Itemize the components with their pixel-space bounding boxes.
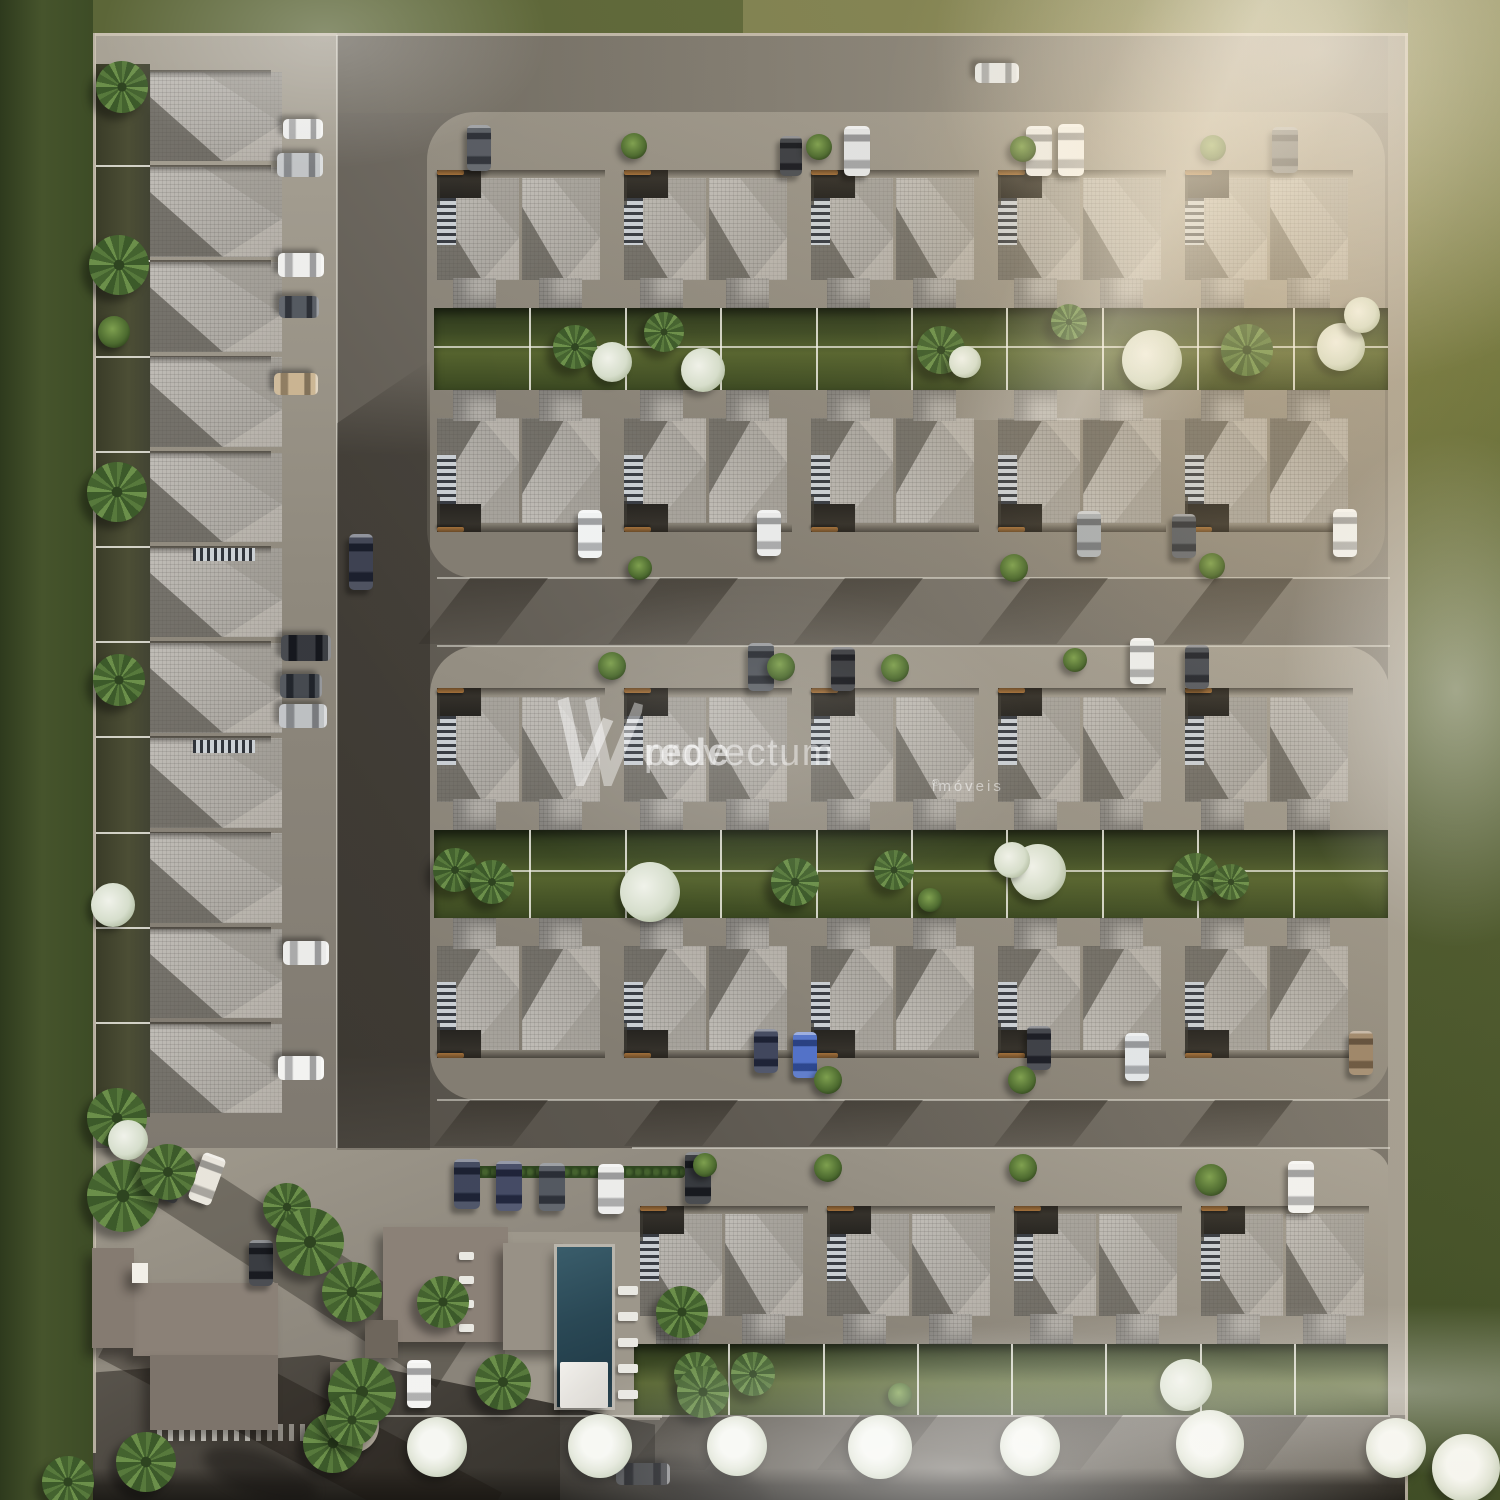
house-cast-shadow xyxy=(811,1050,979,1058)
white-flowering-tree xyxy=(568,1414,632,1478)
yard-fence-line xyxy=(1006,308,1008,390)
roof-right-unit xyxy=(522,946,600,1050)
house-module-left xyxy=(150,927,282,1020)
roof-rear-extension xyxy=(929,1314,971,1344)
house-road-shadow xyxy=(624,1100,738,1146)
roof-rear-extension xyxy=(1287,390,1329,421)
white-flowering-tree xyxy=(1432,1434,1500,1500)
clubhouse-flat-roof xyxy=(503,1243,563,1350)
curb-line xyxy=(437,645,1390,647)
green-bush xyxy=(1009,1154,1037,1182)
car xyxy=(278,253,324,277)
car xyxy=(1130,638,1154,684)
perimeter-wall-right xyxy=(1405,33,1408,1500)
right-sidewalk xyxy=(1388,35,1406,1415)
roof-right-unit xyxy=(896,946,974,1050)
white-flowering-tree xyxy=(407,1417,467,1477)
yard-fence-line xyxy=(1293,830,1295,918)
green-bush xyxy=(1008,1066,1036,1094)
car xyxy=(283,941,329,965)
roof-right-unit xyxy=(522,697,600,802)
roof-rear-extension xyxy=(453,278,495,308)
yard-fence-line xyxy=(816,308,818,390)
house-module xyxy=(437,688,620,830)
yard-fence-line xyxy=(911,308,913,390)
car xyxy=(975,63,1019,83)
white-bush xyxy=(108,1120,148,1160)
yard-fence-line xyxy=(96,832,150,834)
white-bush xyxy=(1122,330,1182,390)
yard-fence-line xyxy=(728,1344,730,1415)
roof-rear-extension xyxy=(1014,390,1056,421)
roof xyxy=(150,929,282,1018)
green-bush xyxy=(693,1153,717,1177)
car xyxy=(1027,1026,1051,1070)
house-module-left xyxy=(150,260,282,353)
yard-fence-line xyxy=(96,356,150,358)
palm-tree xyxy=(322,1262,382,1322)
car xyxy=(349,534,373,590)
house-cast-shadow xyxy=(437,1050,605,1058)
car xyxy=(1077,511,1101,557)
palm-tree xyxy=(140,1144,196,1200)
house-cast-shadow xyxy=(1014,1206,1182,1214)
house-cast-shadow xyxy=(150,260,271,268)
house-cast-shadow xyxy=(150,641,271,649)
car xyxy=(280,674,322,698)
car xyxy=(578,510,602,558)
roof-rear-extension xyxy=(539,390,581,421)
house-cast-shadow xyxy=(998,688,1166,696)
roof xyxy=(150,262,282,351)
green-bush xyxy=(628,556,652,580)
yard-fence-line xyxy=(96,641,150,643)
driveway-stripes xyxy=(193,548,255,561)
roof-right-unit xyxy=(1083,946,1161,1050)
roof-rear-extension xyxy=(539,799,581,830)
house-module xyxy=(1201,1206,1384,1344)
palm-tree xyxy=(326,1394,378,1446)
house-cast-shadow xyxy=(150,70,271,78)
house-module xyxy=(624,688,807,830)
roof-rear-extension xyxy=(726,799,768,830)
white-flowering-tree xyxy=(707,1416,767,1476)
roof-rear-extension xyxy=(1116,1314,1158,1344)
house-road-shadow xyxy=(434,1100,548,1146)
roof-rear-extension xyxy=(1030,1314,1072,1344)
clubhouse-flat-roof xyxy=(133,1283,278,1356)
car xyxy=(1288,1161,1314,1213)
car xyxy=(277,153,323,177)
pool-pergola xyxy=(560,1362,608,1408)
roof xyxy=(150,833,282,922)
roof-rear-extension xyxy=(1287,799,1329,830)
palm-tree xyxy=(417,1276,469,1328)
green-bush xyxy=(1000,554,1028,582)
house-road-shadow xyxy=(793,578,923,644)
roof-right-unit xyxy=(896,418,974,523)
house-module xyxy=(811,170,994,308)
house-cast-shadow xyxy=(150,1022,271,1030)
roof-right-unit xyxy=(896,697,974,802)
roof xyxy=(150,643,282,732)
car xyxy=(281,635,331,661)
roof-rear-extension xyxy=(726,278,768,308)
white-bush xyxy=(620,862,680,922)
yard-fence-line xyxy=(96,165,150,167)
sun-lounger xyxy=(459,1252,474,1260)
roof xyxy=(150,357,282,446)
roof-right-unit xyxy=(912,1214,990,1316)
house-module xyxy=(998,688,1181,830)
house-module xyxy=(827,1206,1010,1344)
green-bush xyxy=(1200,135,1226,161)
palm-tree xyxy=(42,1456,94,1500)
house-module xyxy=(1185,918,1368,1058)
roof-rear-extension xyxy=(539,918,581,949)
yard-fence-line xyxy=(1294,1344,1296,1415)
roof xyxy=(150,453,282,542)
car xyxy=(1058,124,1084,176)
roof-rear-extension xyxy=(1201,799,1243,830)
house-module-left xyxy=(150,165,282,258)
house-cast-shadow xyxy=(827,1206,995,1214)
palm-tree xyxy=(276,1208,344,1276)
green-bush xyxy=(1199,553,1225,579)
house-module-left xyxy=(150,832,282,925)
house-module xyxy=(811,918,994,1058)
yard-fence-line xyxy=(529,830,531,918)
palm-tree xyxy=(87,462,147,522)
roof-rear-extension xyxy=(453,918,495,949)
roof-rear-extension xyxy=(640,918,682,949)
roof-right-unit xyxy=(1083,697,1161,802)
house-cast-shadow xyxy=(1185,524,1353,532)
backyard-strip-left xyxy=(96,64,150,1117)
roof-right-unit xyxy=(1270,946,1348,1050)
palm-tree xyxy=(1051,304,1087,340)
white-bush xyxy=(994,842,1030,878)
palm-tree xyxy=(93,654,145,706)
house-module xyxy=(811,688,994,830)
roof-rear-extension xyxy=(1100,390,1142,421)
car xyxy=(754,1029,778,1073)
car xyxy=(283,119,323,139)
car xyxy=(1185,645,1209,689)
roof-rear-extension xyxy=(913,799,955,830)
house-module xyxy=(1185,170,1368,308)
car xyxy=(454,1159,480,1209)
car xyxy=(1272,127,1298,173)
house-module-left xyxy=(150,1022,282,1115)
car xyxy=(278,1056,324,1080)
house-module xyxy=(998,918,1181,1058)
yard-fence-line xyxy=(1102,830,1104,918)
car xyxy=(1172,514,1196,558)
roof-right-unit xyxy=(1099,1214,1177,1316)
yard-fence-line xyxy=(1102,308,1104,390)
roof-rear-extension xyxy=(1217,1314,1259,1344)
roof-rear-extension xyxy=(742,1314,784,1344)
roof-rear-extension xyxy=(640,390,682,421)
roof-right-unit xyxy=(896,178,974,280)
roof xyxy=(150,1024,282,1113)
house-cast-shadow xyxy=(150,356,271,364)
yard-fence-line xyxy=(96,546,150,548)
clubhouse-flat-roof xyxy=(365,1320,398,1358)
roof-rear-extension xyxy=(453,390,495,421)
yard-fence-line xyxy=(529,308,531,390)
roof-right-unit xyxy=(709,418,787,523)
house-cast-shadow xyxy=(150,165,271,173)
green-bush xyxy=(1063,648,1087,672)
green-bush xyxy=(918,888,942,912)
white-flowering-tree xyxy=(848,1415,912,1479)
roof-right-unit xyxy=(725,1214,803,1316)
house-cast-shadow xyxy=(1185,688,1353,696)
roof-rear-extension xyxy=(640,278,682,308)
car xyxy=(1333,509,1357,557)
hedge-row xyxy=(455,1166,685,1178)
roof-rear-extension xyxy=(1201,278,1243,308)
roof-right-unit xyxy=(1083,178,1161,280)
roof-rear-extension xyxy=(827,799,869,830)
clubhouse-flat-roof xyxy=(92,1248,134,1348)
green-bush xyxy=(98,316,130,348)
white-bush xyxy=(592,342,632,382)
roof xyxy=(150,548,282,637)
car xyxy=(539,1163,565,1211)
yard-fence-line xyxy=(1105,1344,1107,1415)
green-bush xyxy=(806,134,832,160)
road-shadow-left xyxy=(337,360,430,1150)
car xyxy=(249,1240,273,1286)
green-bush xyxy=(1195,1164,1227,1196)
house-road-shadow xyxy=(994,1100,1108,1146)
palm-tree xyxy=(656,1286,708,1338)
sun-lounger xyxy=(618,1364,638,1373)
yard-fence-line xyxy=(1197,308,1199,390)
perimeter-wall-top xyxy=(95,33,1408,36)
house-cast-shadow xyxy=(624,170,792,178)
white-bush xyxy=(949,346,981,378)
white-flowering-tree xyxy=(1176,1410,1244,1478)
roof-right-unit xyxy=(1270,178,1348,280)
house-module xyxy=(624,918,807,1058)
house-cast-shadow xyxy=(1185,1050,1353,1058)
roof-rear-extension xyxy=(726,390,768,421)
house-road-shadow xyxy=(1163,578,1293,644)
car xyxy=(793,1032,817,1078)
palm-tree xyxy=(731,1352,775,1396)
clubhouse-flat-roof xyxy=(132,1263,148,1283)
sun-lounger xyxy=(459,1324,474,1332)
house-module-left xyxy=(150,70,282,163)
white-flowering-tree xyxy=(1366,1418,1426,1478)
house-road-shadow xyxy=(1179,1100,1293,1146)
house-cast-shadow xyxy=(437,688,605,696)
roof-rear-extension xyxy=(1100,918,1142,949)
palm-tree xyxy=(1221,324,1273,376)
house-module-left xyxy=(150,451,282,544)
driveway-stripes xyxy=(193,740,255,753)
car xyxy=(496,1161,522,1211)
yard-fence-line xyxy=(720,830,722,918)
roof-rear-extension xyxy=(1303,1314,1345,1344)
green-bush xyxy=(598,652,626,680)
car xyxy=(844,126,870,176)
car xyxy=(274,373,318,395)
house-cast-shadow xyxy=(811,170,979,178)
house-cast-shadow xyxy=(150,832,271,840)
house-module xyxy=(624,170,807,308)
roof-right-unit xyxy=(1286,1214,1364,1316)
roof-rear-extension xyxy=(1201,390,1243,421)
yard-fence-line xyxy=(96,927,150,929)
green-bush xyxy=(1010,136,1036,162)
sun-lounger xyxy=(618,1338,638,1347)
roof xyxy=(150,167,282,256)
house-road-shadow xyxy=(418,578,548,644)
green-bush xyxy=(814,1066,842,1094)
house-module xyxy=(1185,688,1368,830)
green-bush xyxy=(621,133,647,159)
palm-tree xyxy=(677,1366,729,1418)
palm-tree xyxy=(874,850,914,890)
roof-right-unit xyxy=(1270,418,1348,523)
roof-rear-extension xyxy=(1014,918,1056,949)
palm-tree xyxy=(553,325,597,369)
green-bush xyxy=(767,653,795,681)
house-module xyxy=(811,390,994,532)
yard-fence-line xyxy=(1293,308,1295,390)
roof-rear-extension xyxy=(1287,278,1329,308)
house-cast-shadow xyxy=(640,1206,808,1214)
roof-rear-extension xyxy=(1014,278,1056,308)
house-module xyxy=(437,170,620,308)
house-module-left xyxy=(150,356,282,449)
yard-fence-line xyxy=(1011,1344,1013,1415)
white-bush xyxy=(91,883,135,927)
roof-rear-extension xyxy=(843,1314,885,1344)
roof-rear-extension xyxy=(913,278,955,308)
roof-right-unit xyxy=(709,697,787,802)
house-module xyxy=(1014,1206,1197,1344)
roof xyxy=(150,72,282,161)
car xyxy=(279,704,327,728)
roof-right-unit xyxy=(522,178,600,280)
roof-rear-extension xyxy=(1014,799,1056,830)
house-cast-shadow xyxy=(437,170,605,178)
car xyxy=(598,1164,624,1214)
house-cast-shadow xyxy=(150,451,271,459)
house-cast-shadow xyxy=(1201,1206,1369,1214)
white-bush xyxy=(1160,1359,1212,1411)
clubhouse-flat-roof xyxy=(150,1355,278,1430)
car xyxy=(1349,1031,1373,1075)
car xyxy=(831,647,855,691)
car xyxy=(757,510,781,556)
palm-tree xyxy=(89,235,149,295)
road-top xyxy=(337,33,1408,113)
curb-line xyxy=(632,1147,1390,1149)
house-road-shadow xyxy=(608,578,738,644)
car xyxy=(407,1360,431,1408)
yard-fence-line xyxy=(96,451,150,453)
roof-rear-extension xyxy=(827,918,869,949)
roof-right-unit xyxy=(522,418,600,523)
house-cast-shadow xyxy=(150,927,271,935)
green-bush xyxy=(888,1383,912,1407)
roof-rear-extension xyxy=(913,390,955,421)
roof-rear-extension xyxy=(1100,278,1142,308)
sun-lounger xyxy=(618,1312,638,1321)
car xyxy=(279,296,319,318)
palm-tree xyxy=(771,858,819,906)
house-module-left xyxy=(150,641,282,734)
green-bush xyxy=(881,654,909,682)
roof-right-unit xyxy=(1270,697,1348,802)
yard-fence-line xyxy=(917,1344,919,1415)
roof-rear-extension xyxy=(913,918,955,949)
palm-tree xyxy=(470,860,514,904)
palm-tree xyxy=(1213,864,1249,900)
roof-rear-extension xyxy=(726,918,768,949)
yard-fence-line xyxy=(96,736,150,738)
yard-fence-line xyxy=(823,1344,825,1415)
palm-tree xyxy=(644,312,684,352)
house-cast-shadow xyxy=(1185,170,1353,178)
white-flowering-tree xyxy=(1000,1416,1060,1476)
car xyxy=(467,125,491,171)
roof-rear-extension xyxy=(453,799,495,830)
roof-rear-extension xyxy=(827,390,869,421)
sun-lounger xyxy=(618,1286,638,1295)
roof-right-unit xyxy=(1083,418,1161,523)
sun-lounger xyxy=(618,1390,638,1399)
roof-rear-extension xyxy=(1201,918,1243,949)
palm-tree xyxy=(475,1354,531,1410)
roof-rear-extension xyxy=(1100,799,1142,830)
house-module xyxy=(998,170,1181,308)
car xyxy=(780,136,802,176)
house-cast-shadow xyxy=(811,524,979,532)
house-module xyxy=(437,918,620,1058)
palm-tree xyxy=(96,61,148,113)
roof-rear-extension xyxy=(1287,918,1329,949)
white-bush xyxy=(681,348,725,392)
white-bush xyxy=(1344,297,1380,333)
yard-fence-line xyxy=(96,1022,150,1024)
green-bush xyxy=(814,1154,842,1182)
palm-tree xyxy=(116,1432,176,1492)
condominium-aerial-render: redeprovectum imóveis® xyxy=(0,0,1500,1500)
car xyxy=(1125,1033,1149,1081)
roof-rear-extension xyxy=(640,799,682,830)
house-road-shadow xyxy=(809,1100,923,1146)
roof-right-unit xyxy=(709,178,787,280)
roof-rear-extension xyxy=(827,278,869,308)
roof-rear-extension xyxy=(539,278,581,308)
house-road-shadow xyxy=(978,578,1108,644)
